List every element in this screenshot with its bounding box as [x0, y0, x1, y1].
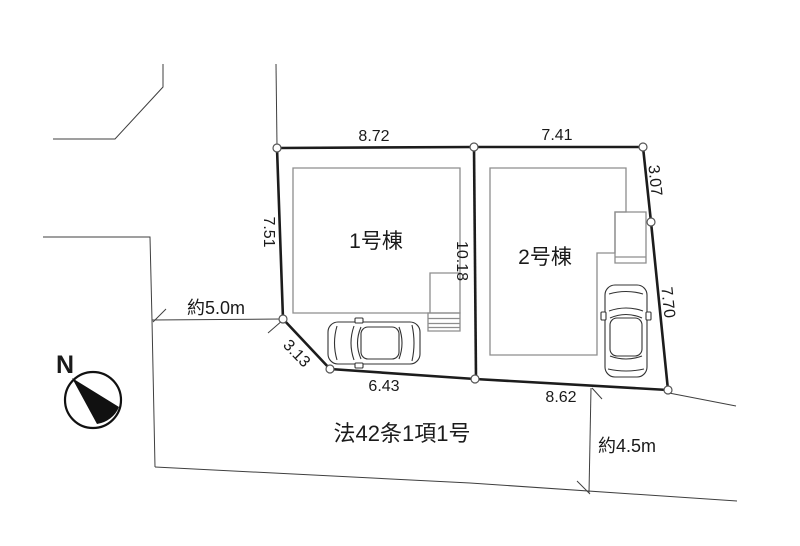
dimension-right-upper: 3.07 [644, 164, 664, 197]
building1-entrance-steps [428, 313, 460, 331]
building2-entrance-porch [615, 212, 646, 263]
dimension-lot1-bottom: 6.43 [368, 378, 399, 395]
site-plan-drawing: N 8.72 7.41 3.07 7.70 8.62 6.43 3.13 7.5… [0, 0, 800, 546]
boundary-point-marker [470, 143, 478, 151]
dimension-sw-diagonal: 3.13 [279, 337, 313, 371]
dimension-lot2-top: 7.41 [541, 127, 572, 144]
boundary-point-marker [639, 143, 647, 151]
dimension-tick [577, 481, 590, 494]
north-label: N [56, 351, 74, 379]
building1-label: 1号棟 [349, 230, 403, 253]
lot-divider-line [474, 147, 476, 379]
dimension-lot2-bottom: 8.62 [545, 389, 576, 406]
dimension-center-divider: 10.18 [453, 241, 470, 281]
road-edge-north [276, 64, 277, 146]
road-designation-label: 法42条1項1号 [334, 421, 471, 446]
boundary-point-marker [326, 365, 334, 373]
south-road-width-label: 約4.5m [598, 436, 656, 456]
dimension-tick [592, 388, 602, 399]
boundary-point-marker [273, 144, 281, 152]
road-width-line-west [152, 319, 281, 320]
car2-top-view [601, 285, 651, 377]
dimension-lot1-top: 8.72 [358, 128, 389, 145]
site-plan-canvas: N 8.72 7.41 3.07 7.70 8.62 6.43 3.13 7.5… [0, 0, 800, 546]
boundary-point-marker [647, 218, 655, 226]
car1-top-view [328, 318, 420, 368]
road-edge-south [155, 467, 737, 501]
boundary-point-marker [471, 375, 479, 383]
west-road-width-label: 約5.0m [187, 298, 245, 318]
north-compass: N [56, 351, 121, 428]
dimension-west-side: 7.51 [260, 216, 277, 247]
road-edge-southeast [669, 393, 736, 406]
boundary-point-marker [279, 315, 287, 323]
text-labels: 1号棟 2号棟 法42条1項1号 約5.0m 約4.5m [187, 230, 656, 456]
road-edge-northwest [53, 64, 163, 139]
dimension-right-lower: 7.70 [657, 286, 677, 319]
boundary-point-marker [664, 386, 672, 394]
building2-label: 2号棟 [518, 246, 572, 269]
road-width-line-south [589, 388, 591, 493]
